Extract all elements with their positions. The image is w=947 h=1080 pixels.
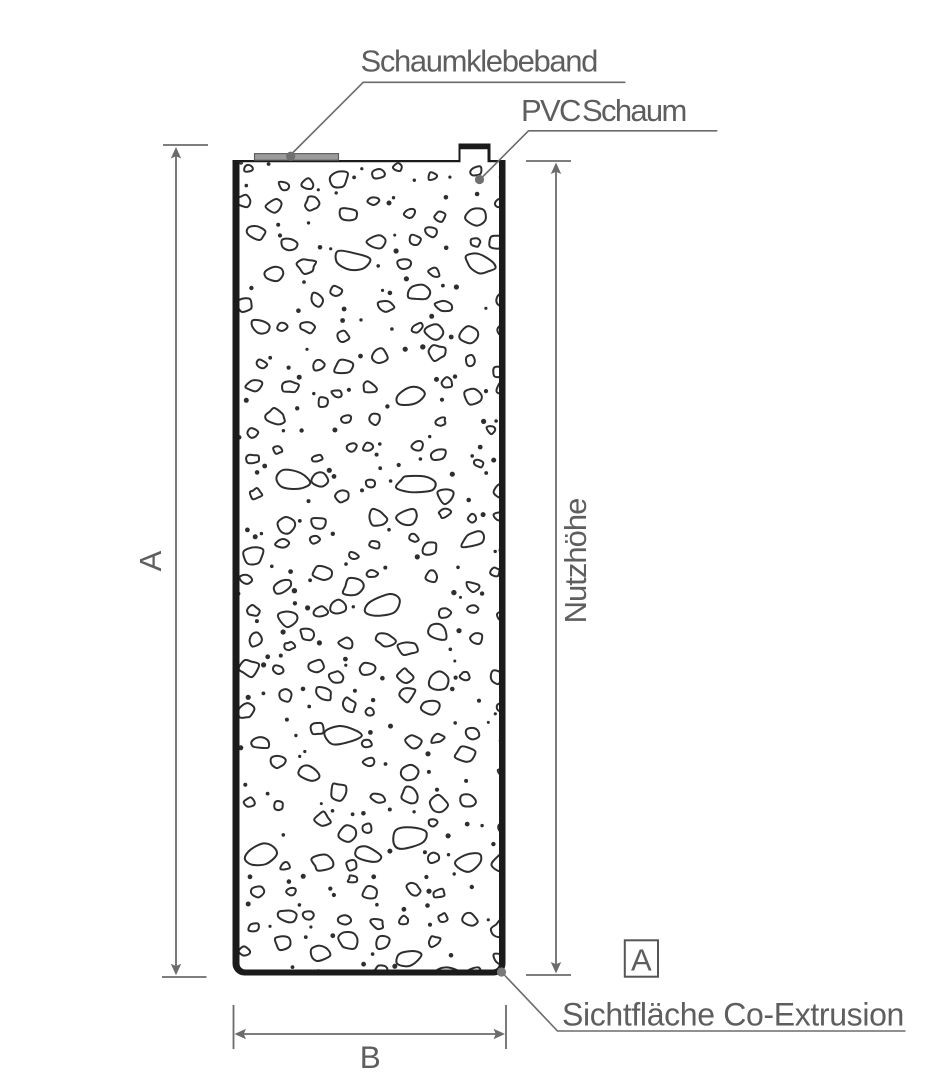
svg-text:Sichtfläche Co-Extrusion: Sichtfläche Co-Extrusion xyxy=(562,997,904,1033)
svg-text:A: A xyxy=(133,550,168,571)
svg-text:PVC Schaum: PVC Schaum xyxy=(521,93,686,128)
svg-text:A: A xyxy=(631,942,652,977)
svg-text:B: B xyxy=(360,1039,381,1075)
svg-text:Schaumklebeband: Schaumklebeband xyxy=(361,43,598,78)
svg-text:Nutzhöhe: Nutzhöhe xyxy=(558,499,593,624)
